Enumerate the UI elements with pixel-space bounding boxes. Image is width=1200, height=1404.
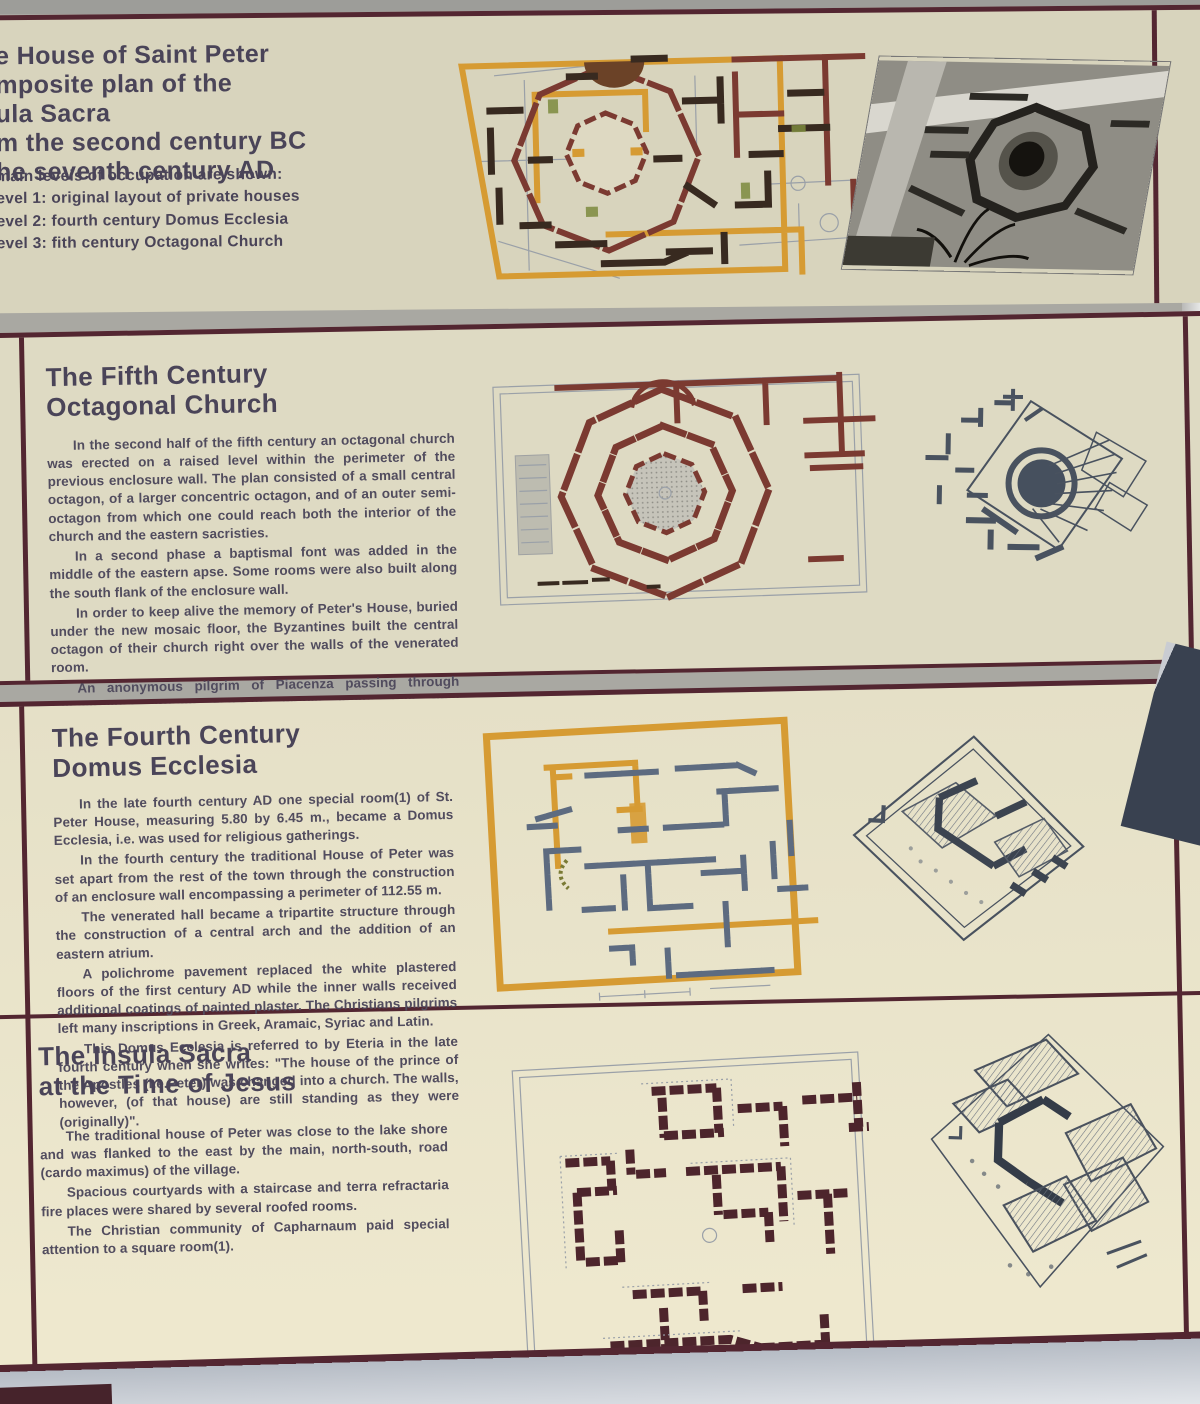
panel-title: The Fourth Century Domus Ecclesia [51,716,452,784]
octagonal-church-plan-drawing [477,357,882,623]
body-paragraph: In order to keep alive the memory of Pet… [50,597,459,677]
domus-ecclesia-axonometric-drawing [832,709,1106,962]
panel-composite-plan: e House of Saint Peter mposite plan of t… [0,5,1200,314]
body-paragraph: The venerated hall became a tripartite s… [55,901,456,964]
domus-ecclesia-plan-drawing [457,701,829,1012]
occupation-levels-list: main leveis of occupation are shown: eve… [0,164,300,257]
panel-text-column: The Insula Sacra at the Time of Jesus Th… [38,1034,450,1261]
title-line: m the second century BC [0,127,307,159]
body-paragraph: In a second phase a baptismal font was a… [49,541,458,603]
composite-plan-drawing [433,31,872,308]
panel-title: The Fifth Century Octagonal Church [45,356,454,423]
panel-border-line [19,707,38,1402]
body-paragraph: The Christian community of Capharnaum pa… [42,1215,451,1260]
panel-board-lower: The Fourth Century Domus Ecclesia In the… [0,678,1200,1404]
body-paragraph: Spacious courtyards with a staircase and… [41,1177,450,1222]
title-line: Domus Ecclesia [52,746,453,784]
body-paragraph: In the second half of the fifth century … [47,429,457,546]
panel-fifth-century: The Fifth Century Octagonal Church In th… [0,311,1200,685]
aerial-photo-image [842,57,1170,275]
title-line: Octagonal Church [46,386,454,423]
title-line: e House of Saint Peter [0,40,306,72]
body-paragraph: In the late fourth century AD one specia… [53,788,454,851]
title-line: mposite plan of the [0,69,306,101]
panel-border-line [19,338,30,681]
aerial-photo [842,57,1170,275]
level-item: evel 2: fourth century Domus Ecclesia [0,209,300,234]
body-paragraph: A polichrome pavement replaced the white… [56,958,457,1039]
frame-corner [0,1384,112,1404]
level-item: evel 1: original layout of private house… [0,186,300,211]
body-paragraph: The traditional house of Peter was close… [40,1120,449,1183]
body-paragraph: In the fourth century the traditional Ho… [54,844,455,907]
title-line: at the Time of Jesus [38,1064,447,1102]
panel-title: The Insula Sacra at the Time of Jesus [38,1034,447,1102]
title-line: ula Sacra [0,98,306,130]
octagonal-church-axonometric-drawing [894,359,1166,593]
level-item: evel 3: fith century Octagonal Church [0,231,300,256]
insula-sacra-plan-drawing [493,1041,895,1392]
levels-intro: main leveis of occupation are shown: [0,164,300,189]
insula-sacra-axonometric-drawing [906,1004,1184,1312]
panel-border-line [1183,316,1194,659]
signboard-photo: e House of Saint Peter mposite plan of t… [0,0,1200,1404]
